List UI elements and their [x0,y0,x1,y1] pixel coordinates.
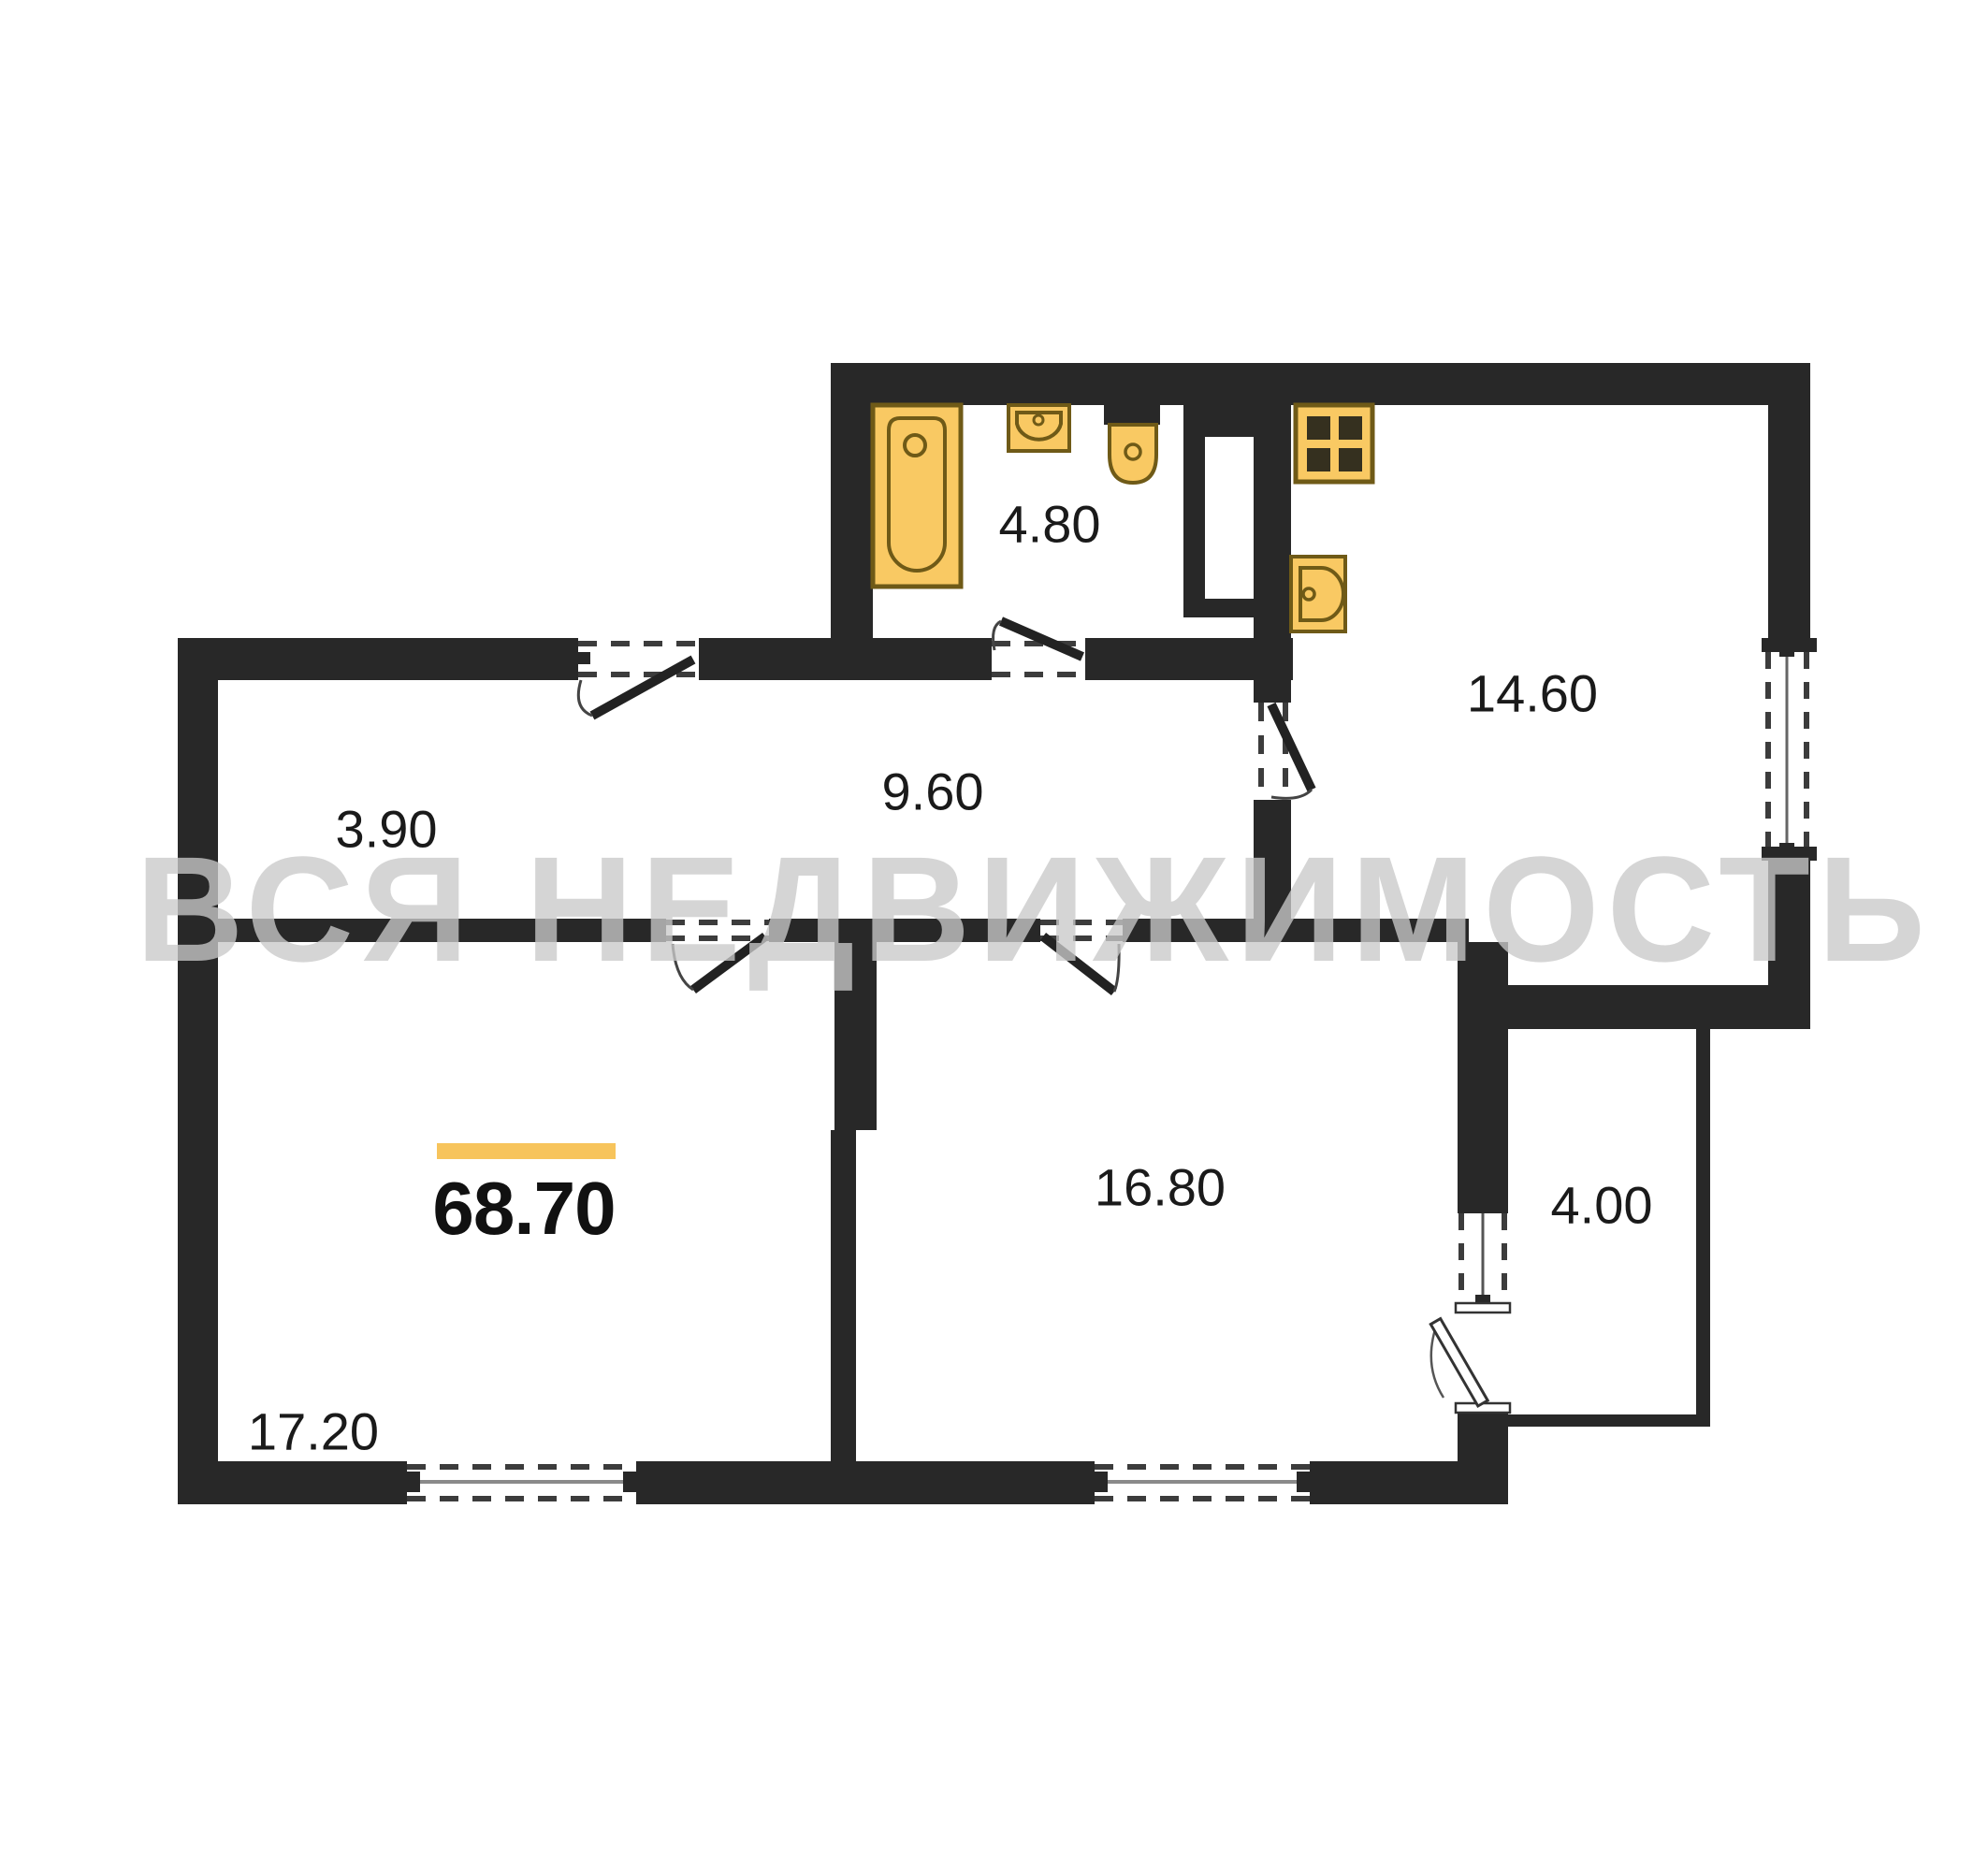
area-label-bedroom: 16.80 [1095,1157,1226,1218]
wall-kitchen-right-upper [1768,363,1810,638]
area-label-corridor: 9.60 [882,761,984,822]
area-label-balcony: 4.00 [1551,1175,1653,1236]
stove-icon [1296,405,1372,482]
wall-balcony-right-thin [1696,1029,1710,1427]
total-area-accent-bar [437,1143,616,1159]
washbasin-icon [1009,405,1069,451]
wall-hall-top-a [178,638,578,680]
door-entry [578,644,699,716]
wall-top [831,363,1810,405]
total-area-value: 68.70 [432,1166,615,1252]
window-kitchen [1768,645,1807,854]
wall-shaft-step [1205,396,1258,437]
window-cap-balcony [1458,1199,1508,1213]
area-label-living-room: 17.20 [248,1401,379,1462]
door-balcony [1430,1213,1510,1413]
door-kitchen [1261,703,1312,800]
area-label-kitchen: 14.60 [1467,663,1598,724]
wall-bottom-a [178,1461,407,1504]
wall-hall-top-b [699,638,992,680]
door-bathroom [992,621,1085,674]
wall-bottom-c [1310,1461,1508,1504]
bathtub-icon [873,405,961,587]
watermark-text: ВСЯ НЕДВИЖИМОСТЬ [136,834,1933,984]
wall-bottom-b [636,1461,1095,1504]
wall-shaft-bottom [1183,599,1258,617]
wall-balcony-left-lower [1458,1413,1508,1461]
window-cap-kitchen-top [1762,638,1817,652]
wall-kitchen-left-upper [1254,363,1291,703]
door-jamb-tab [578,652,590,664]
wall-left-outer [178,638,218,1504]
window-bedroom [1095,1467,1310,1499]
floor-plan: 3.90 9.60 4.80 14.60 16.80 17.20 4.00 68… [0,0,1988,1871]
wall-balcony-bottom-thin [1508,1414,1696,1427]
kitchen-sink-icon [1291,557,1345,631]
window-living-room [407,1467,636,1499]
area-label-bathroom: 4.80 [999,494,1101,555]
wall-room-divider-thin [831,1130,856,1461]
toilet-icon [1104,396,1160,483]
wall-shaft-left [1183,396,1205,617]
